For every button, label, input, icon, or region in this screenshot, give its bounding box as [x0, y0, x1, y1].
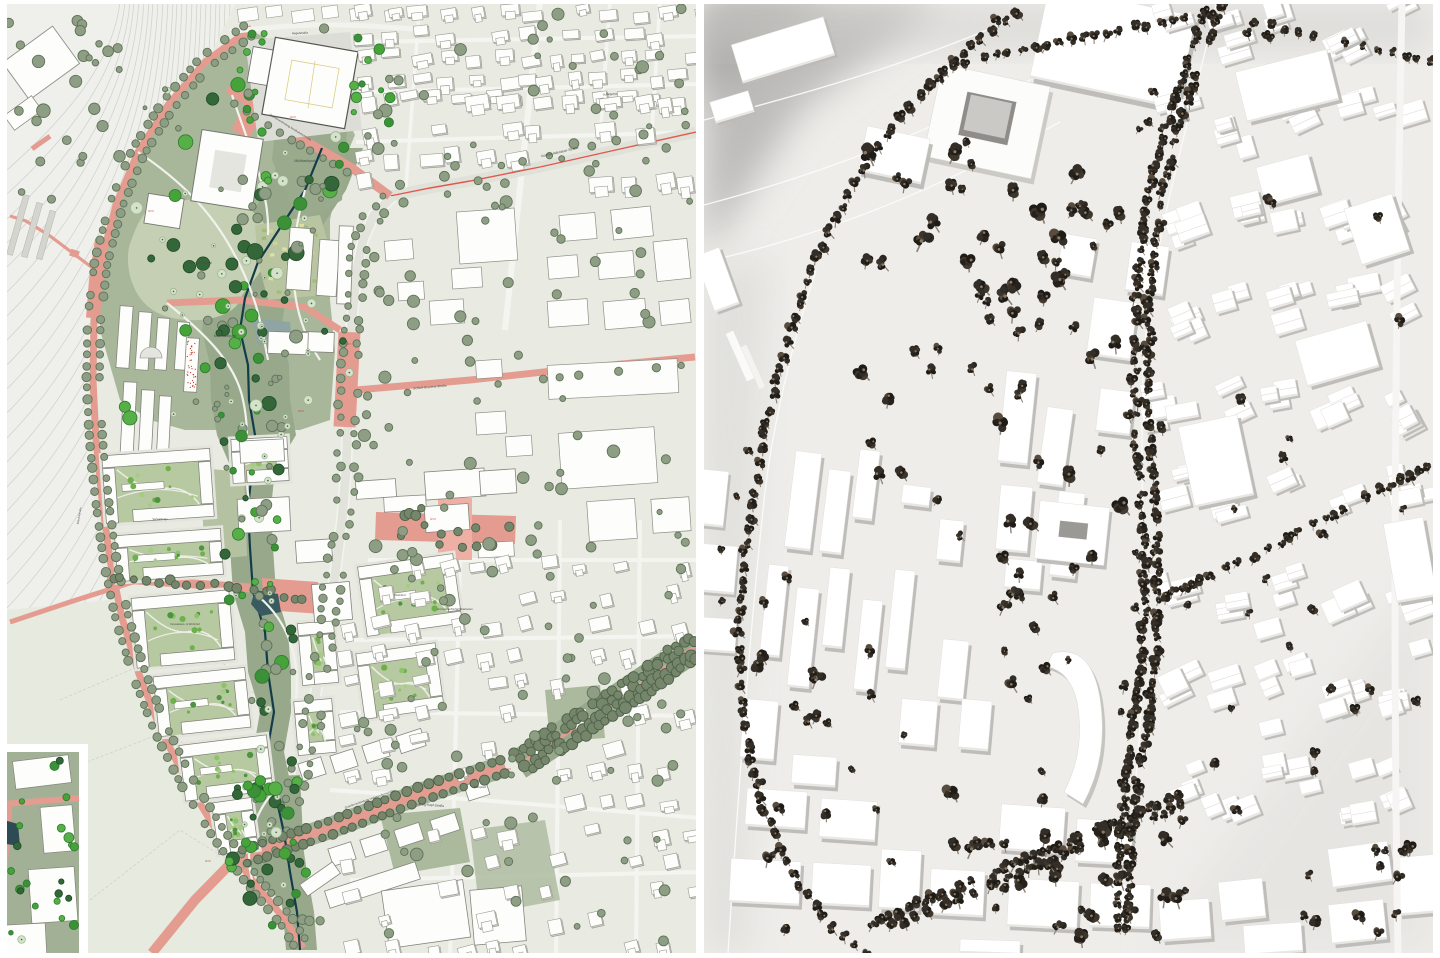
- svg-text:Innovations- & Wohnhof: Innovations- & Wohnhof: [170, 622, 200, 626]
- svg-text:Wohnhof: Wohnhof: [394, 593, 405, 597]
- svg-text:Openair-Wiese: Openair-Wiese: [188, 261, 212, 265]
- svg-text:IV-VI: IV-VI: [290, 115, 296, 119]
- svg-text:GrünachseTal Sichtbarkeiten: GrünachseTal Sichtbarkeiten: [437, 607, 473, 611]
- svg-text:IV-VI: IV-VI: [505, 767, 511, 771]
- svg-text:IV-VI: IV-VI: [148, 209, 154, 213]
- svg-text:Mühlbachpark: Mühlbachpark: [294, 159, 316, 163]
- svg-text:IV-VI: IV-VI: [262, 587, 268, 591]
- svg-text:Hegelstraße: Hegelstraße: [292, 31, 309, 36]
- svg-text:IV-VI: IV-VI: [298, 409, 304, 413]
- svg-text:IV-VI: IV-VI: [205, 859, 211, 863]
- svg-text:Verwaltungs: Verwaltungs: [152, 517, 168, 521]
- svg-text:IV-VI: IV-VI: [345, 342, 351, 346]
- svg-text:Mühlbachpark: Mühlbachpark: [214, 334, 237, 338]
- svg-text:IV-VI: IV-VI: [430, 517, 436, 521]
- svg-text:Parkplatz: Parkplatz: [474, 785, 487, 789]
